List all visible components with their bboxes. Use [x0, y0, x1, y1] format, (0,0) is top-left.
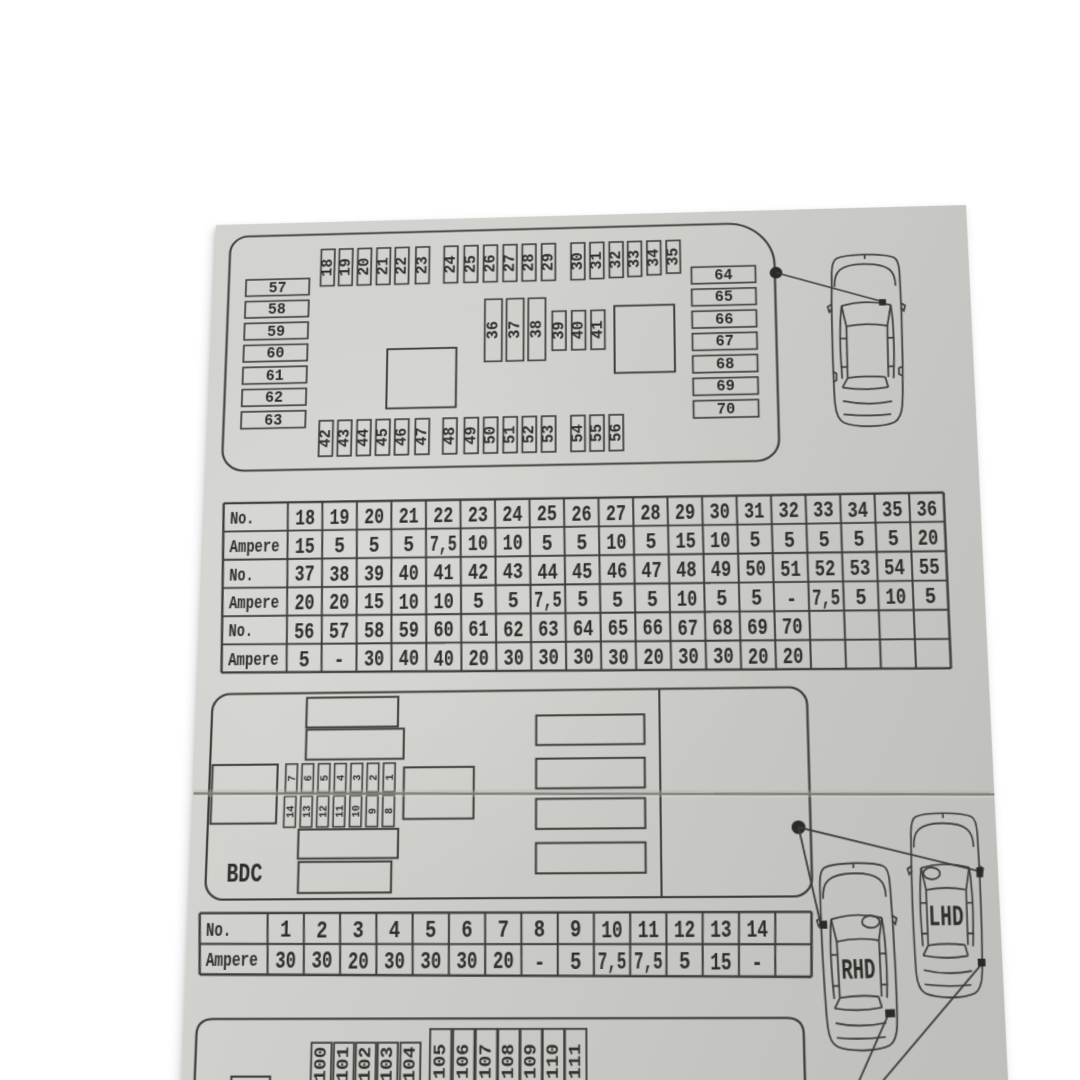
svg-text:5: 5	[716, 588, 728, 613]
svg-text:2: 2	[367, 774, 380, 781]
svg-text:51: 51	[502, 425, 520, 444]
svg-text:45: 45	[375, 428, 393, 447]
svg-text:25: 25	[537, 504, 557, 529]
svg-text:105: 105	[432, 1044, 451, 1079]
svg-text:42: 42	[468, 562, 488, 587]
svg-text:101: 101	[335, 1046, 354, 1080]
svg-text:65: 65	[715, 288, 734, 307]
svg-text:3: 3	[351, 774, 364, 781]
svg-text:42: 42	[318, 429, 336, 448]
svg-text:30: 30	[678, 646, 699, 671]
svg-text:30: 30	[275, 949, 297, 976]
svg-text:32: 32	[778, 500, 799, 525]
svg-text:61: 61	[468, 619, 489, 644]
svg-text:29: 29	[675, 502, 696, 527]
svg-text:21: 21	[398, 506, 418, 531]
svg-text:4: 4	[335, 774, 348, 781]
svg-text:21: 21	[375, 257, 392, 276]
svg-text:30: 30	[713, 646, 734, 672]
svg-text:20: 20	[468, 647, 489, 672]
svg-text:13: 13	[301, 805, 314, 818]
svg-text:25: 25	[463, 255, 480, 274]
svg-text:7,5: 7,5	[598, 950, 627, 977]
svg-text:20: 20	[643, 646, 664, 671]
svg-text:64: 64	[573, 618, 594, 643]
svg-text:20: 20	[783, 645, 804, 671]
svg-text:Ampere: Ampere	[228, 593, 279, 615]
svg-text:40: 40	[434, 648, 455, 673]
svg-text:31: 31	[589, 251, 606, 270]
svg-text:35: 35	[665, 247, 683, 266]
svg-text:107: 107	[477, 1044, 496, 1079]
svg-text:5: 5	[853, 528, 865, 553]
svg-text:Ampere: Ampere	[205, 950, 258, 973]
svg-text:26: 26	[482, 254, 499, 273]
svg-text:69: 69	[747, 617, 768, 642]
svg-text:23: 23	[414, 256, 431, 275]
svg-text:8: 8	[383, 808, 396, 815]
svg-text:30: 30	[608, 646, 629, 671]
svg-text:40: 40	[571, 321, 588, 340]
svg-text:20: 20	[748, 645, 769, 671]
svg-text:10: 10	[677, 588, 698, 613]
svg-text:9: 9	[570, 918, 581, 945]
svg-text:12: 12	[674, 918, 696, 945]
svg-text:5: 5	[888, 528, 900, 553]
svg-text:56: 56	[608, 423, 626, 442]
svg-text:7,5: 7,5	[430, 534, 458, 559]
svg-text:66: 66	[715, 310, 734, 329]
svg-text:5: 5	[576, 532, 587, 557]
svg-text:33: 33	[627, 250, 645, 269]
svg-text:5: 5	[855, 587, 867, 612]
svg-text:104: 104	[401, 1046, 420, 1080]
svg-text:111: 111	[567, 1043, 586, 1079]
svg-text:-: -	[786, 587, 798, 612]
svg-text:10: 10	[606, 531, 626, 556]
svg-text:13: 13	[710, 918, 732, 945]
svg-text:41: 41	[433, 562, 453, 587]
svg-text:43: 43	[336, 429, 354, 448]
svg-text:60: 60	[433, 619, 454, 644]
svg-text:11: 11	[638, 918, 659, 945]
svg-text:27: 27	[606, 503, 626, 528]
svg-text:28: 28	[640, 502, 661, 527]
svg-text:28: 28	[521, 253, 538, 272]
svg-text:5: 5	[403, 534, 414, 559]
svg-text:23: 23	[468, 505, 488, 530]
svg-text:69: 69	[716, 377, 735, 396]
svg-text:5: 5	[612, 589, 623, 614]
svg-text:51: 51	[780, 558, 801, 583]
svg-text:109: 109	[522, 1044, 541, 1079]
svg-text:LHD: LHD	[928, 902, 964, 935]
svg-text:1: 1	[280, 919, 292, 945]
svg-text:20: 20	[493, 950, 514, 977]
svg-text:14: 14	[284, 805, 297, 818]
svg-text:36: 36	[916, 498, 938, 523]
svg-text:7,5: 7,5	[634, 950, 663, 977]
svg-text:10: 10	[885, 586, 907, 611]
svg-text:56: 56	[294, 620, 315, 645]
svg-text:65: 65	[608, 618, 629, 643]
svg-text:BDC: BDC	[226, 859, 263, 891]
svg-text:30: 30	[311, 950, 333, 977]
svg-text:30: 30	[456, 950, 477, 977]
svg-text:30: 30	[538, 647, 558, 672]
svg-text:55: 55	[589, 424, 607, 443]
svg-text:5: 5	[749, 530, 761, 555]
svg-text:7: 7	[498, 918, 509, 945]
svg-text:5: 5	[679, 950, 691, 977]
svg-text:5: 5	[318, 775, 331, 782]
svg-text:110: 110	[545, 1044, 564, 1079]
svg-text:34: 34	[847, 499, 868, 524]
svg-text:30: 30	[384, 950, 405, 977]
svg-text:58: 58	[268, 300, 286, 318]
svg-text:18: 18	[295, 507, 316, 531]
svg-text:55: 55	[919, 557, 941, 582]
svg-text:18: 18	[320, 258, 337, 276]
svg-text:26: 26	[571, 503, 591, 528]
svg-text:15: 15	[675, 531, 696, 556]
svg-text:20: 20	[294, 592, 315, 617]
svg-text:10: 10	[433, 591, 454, 616]
svg-text:32: 32	[608, 250, 625, 269]
svg-text:-: -	[534, 950, 545, 977]
svg-text:67: 67	[715, 332, 734, 351]
svg-text:100: 100	[312, 1047, 331, 1080]
svg-text:46: 46	[394, 428, 412, 447]
svg-text:12: 12	[317, 805, 330, 818]
svg-text:68: 68	[716, 355, 735, 374]
svg-text:5: 5	[368, 535, 379, 560]
svg-text:38: 38	[529, 320, 546, 339]
svg-text:5: 5	[577, 589, 588, 614]
svg-text:10: 10	[710, 530, 731, 555]
svg-text:No.: No.	[230, 509, 255, 530]
svg-text:27: 27	[502, 254, 519, 273]
svg-text:43: 43	[503, 561, 523, 586]
svg-text:54: 54	[884, 557, 906, 582]
svg-text:14: 14	[746, 918, 768, 945]
svg-text:5: 5	[542, 532, 553, 557]
svg-text:70: 70	[717, 400, 736, 419]
svg-text:40: 40	[399, 648, 420, 673]
svg-text:70: 70	[782, 616, 803, 641]
svg-text:34: 34	[646, 248, 664, 267]
svg-text:RHD: RHD	[841, 955, 877, 988]
svg-text:10: 10	[502, 533, 522, 558]
svg-text:62: 62	[265, 388, 284, 407]
svg-text:5: 5	[570, 950, 581, 977]
svg-text:5: 5	[508, 590, 519, 615]
svg-text:7,5: 7,5	[534, 590, 562, 615]
svg-text:50: 50	[745, 559, 766, 584]
svg-text:39: 39	[551, 321, 568, 340]
svg-text:66: 66	[642, 617, 663, 642]
svg-text:50: 50	[482, 426, 500, 445]
svg-text:39: 39	[364, 563, 385, 588]
svg-text:10: 10	[468, 533, 488, 558]
svg-text:9: 9	[367, 808, 380, 815]
svg-text:57: 57	[268, 279, 286, 297]
svg-text:5: 5	[334, 535, 345, 559]
svg-text:41: 41	[590, 320, 608, 339]
svg-text:24: 24	[502, 504, 522, 529]
svg-text:48: 48	[676, 559, 697, 584]
svg-text:29: 29	[541, 253, 558, 272]
svg-text:15: 15	[294, 535, 315, 560]
svg-text:57: 57	[329, 620, 350, 645]
svg-text:No.: No.	[228, 621, 253, 643]
svg-text:68: 68	[712, 617, 733, 642]
svg-text:10: 10	[601, 918, 622, 945]
svg-text:52: 52	[815, 558, 836, 583]
svg-text:44: 44	[537, 561, 557, 586]
svg-text:48: 48	[442, 427, 460, 446]
svg-text:33: 33	[813, 500, 834, 525]
svg-text:37: 37	[507, 320, 524, 339]
svg-text:36: 36	[485, 321, 502, 340]
svg-text:19: 19	[329, 507, 349, 532]
svg-text:2: 2	[316, 919, 328, 946]
svg-text:20: 20	[356, 257, 373, 275]
svg-text:22: 22	[394, 256, 411, 275]
svg-text:10: 10	[398, 591, 419, 616]
svg-text:63: 63	[264, 411, 283, 430]
svg-text:10: 10	[350, 805, 363, 818]
svg-text:47: 47	[414, 427, 432, 446]
svg-text:-: -	[751, 950, 763, 977]
svg-text:Ampere: Ampere	[228, 649, 279, 671]
svg-text:30: 30	[709, 501, 730, 526]
svg-text:53: 53	[541, 425, 559, 444]
svg-text:19: 19	[338, 258, 355, 276]
svg-text:52: 52	[521, 425, 539, 444]
svg-text:47: 47	[641, 560, 662, 585]
svg-text:5: 5	[298, 649, 310, 674]
svg-text:53: 53	[849, 557, 871, 582]
svg-text:7: 7	[286, 775, 299, 782]
svg-text:108: 108	[500, 1044, 519, 1079]
svg-text:Ampere: Ampere	[229, 536, 280, 558]
svg-text:20: 20	[364, 506, 384, 531]
svg-text:58: 58	[364, 620, 385, 645]
svg-text:5: 5	[784, 529, 796, 554]
svg-text:103: 103	[379, 1047, 398, 1080]
svg-text:24: 24	[443, 255, 460, 274]
svg-text:30: 30	[420, 950, 441, 977]
svg-text:8: 8	[534, 918, 545, 945]
svg-text:6: 6	[302, 775, 315, 782]
svg-text:59: 59	[267, 322, 285, 340]
svg-text:5: 5	[818, 529, 830, 554]
svg-text:49: 49	[711, 559, 732, 584]
svg-text:7,5: 7,5	[812, 587, 841, 612]
svg-text:No.: No.	[205, 919, 231, 942]
svg-text:5: 5	[647, 589, 658, 614]
svg-text:38: 38	[329, 563, 350, 588]
svg-text:6: 6	[461, 918, 473, 945]
svg-text:37: 37	[294, 564, 315, 589]
svg-text:64: 64	[714, 266, 733, 285]
svg-text:15: 15	[710, 950, 732, 977]
svg-text:102: 102	[357, 1047, 376, 1080]
svg-text:20: 20	[917, 527, 939, 552]
svg-text:61: 61	[265, 366, 284, 385]
svg-text:60: 60	[266, 344, 285, 363]
svg-text:30: 30	[503, 647, 524, 672]
svg-text:54: 54	[570, 424, 588, 443]
svg-text:62: 62	[503, 619, 523, 644]
svg-text:22: 22	[433, 505, 453, 530]
svg-text:106: 106	[455, 1044, 474, 1079]
svg-text:15: 15	[364, 591, 385, 616]
svg-text:No.: No.	[229, 565, 254, 587]
svg-text:20: 20	[329, 592, 350, 617]
svg-text:44: 44	[356, 428, 374, 447]
svg-text:11: 11	[334, 805, 347, 818]
svg-text:49: 49	[463, 426, 481, 445]
svg-text:5: 5	[425, 919, 437, 946]
svg-text:31: 31	[744, 501, 765, 526]
svg-text:35: 35	[882, 499, 904, 524]
svg-text:63: 63	[538, 618, 558, 643]
svg-text:59: 59	[398, 620, 419, 645]
svg-text:4: 4	[389, 919, 401, 946]
svg-text:67: 67	[677, 617, 698, 642]
svg-text:3: 3	[352, 919, 364, 946]
svg-text:45: 45	[572, 561, 592, 586]
svg-text:30: 30	[570, 252, 587, 271]
svg-text:40: 40	[398, 563, 418, 588]
svg-text:5: 5	[473, 590, 484, 615]
svg-text:-: -	[333, 648, 344, 673]
svg-text:46: 46	[607, 560, 628, 585]
svg-text:5: 5	[925, 586, 937, 611]
svg-text:5: 5	[646, 531, 657, 556]
svg-text:5: 5	[751, 588, 763, 613]
svg-text:30: 30	[364, 648, 385, 673]
svg-text:1: 1	[384, 774, 397, 781]
svg-text:20: 20	[347, 950, 368, 977]
svg-text:30: 30	[573, 647, 594, 672]
